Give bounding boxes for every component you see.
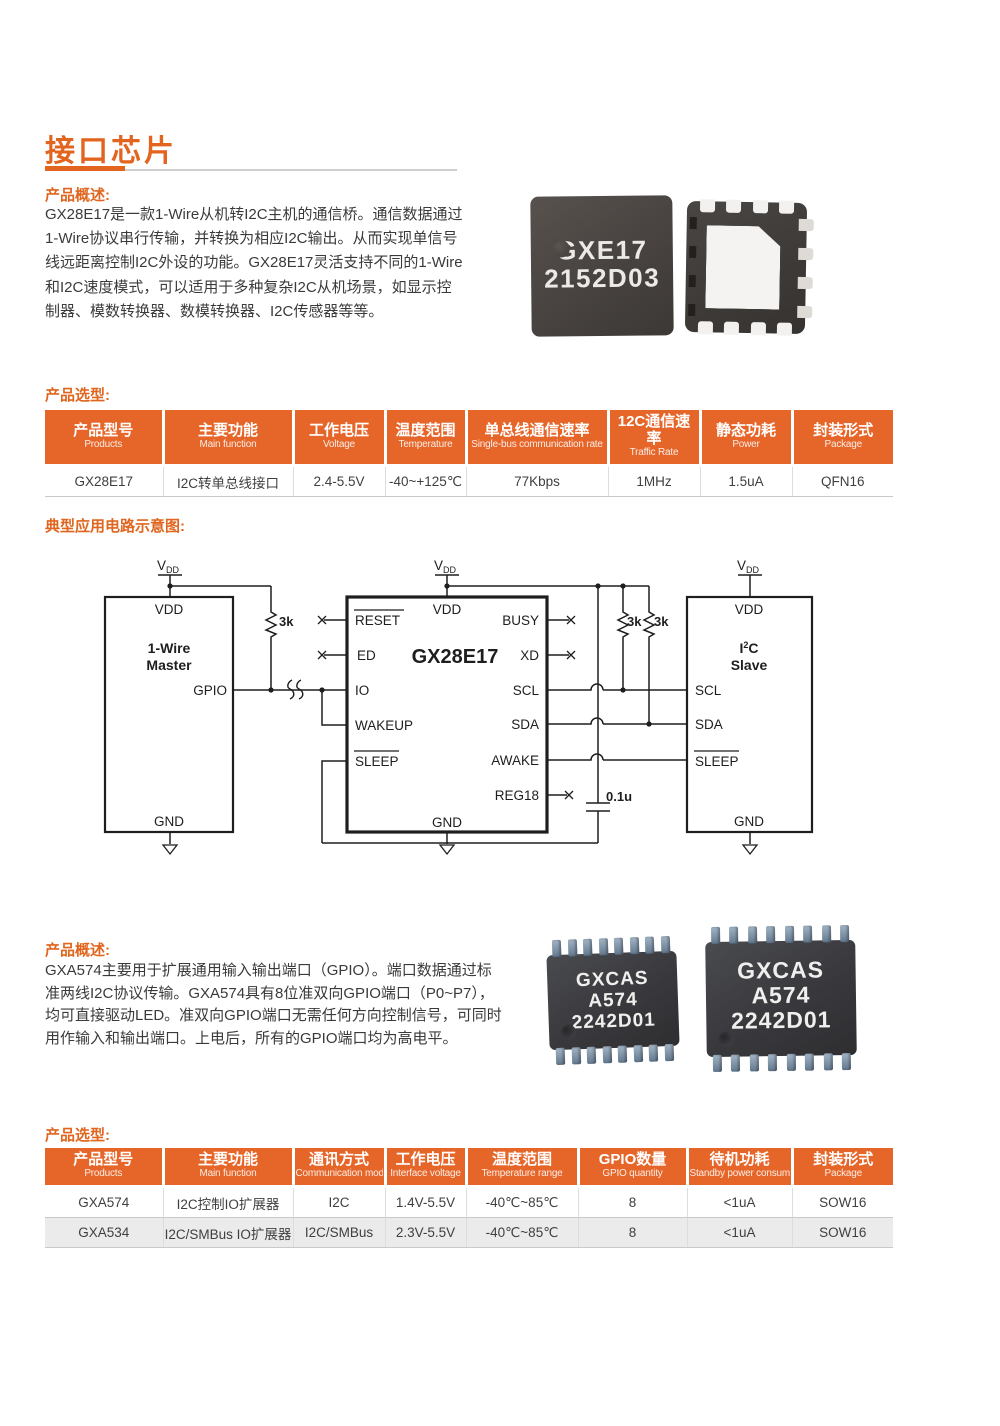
table-row: GXA574 I2C控制IO扩展器 I2C 1.4V-5.5V -40℃~85℃… [45,1187,893,1218]
data-cell: 8 [578,1187,687,1218]
qfn-pads-top [700,199,794,214]
product-table-2: 产品型号Products 主要功能Main function 通讯方式Commu… [45,1148,893,1248]
page-title: 接口芯片 [45,126,177,170]
slave-sleep-pin: SLEEP [695,754,739,769]
header-cell: 温度范围Temperature range [466,1148,578,1187]
chip-sleep-pin: SLEEP [355,754,399,769]
data-cell: GXA534 [45,1218,163,1248]
qfn-pads-left [688,217,697,316]
selection-label-1: 产品选型: [45,384,110,405]
chip-gnd-pin: GND [432,815,462,830]
data-cell: I2C [293,1187,385,1218]
chip-io-pin: IO [355,683,369,698]
chip-reset-pin: RESET [355,613,400,628]
chip-reg18-pin: REG18 [495,788,539,803]
chip-marking-line: A574 [706,982,856,1009]
qfn-pads-right [797,219,814,318]
data-cell: 77Kbps [466,466,608,497]
paragraph-line: 制器、模数转换器、数模转换器、I2C传感器等等。 [45,300,463,324]
data-cell: I2C/SMBus [293,1218,385,1248]
data-cell: I2C控制IO扩展器 [163,1187,293,1218]
table-header-row: 产品型号Products 主要功能Main function 通讯方式Commu… [45,1148,893,1187]
header-cell: 工作电压Interface voltage [385,1148,466,1187]
chip-ed-pin: ED [357,648,376,663]
chip-marking-line: 2152D03 [531,263,673,292]
header-cell: 主要功能Main function [163,410,293,466]
data-cell: -40℃~85℃ [466,1218,578,1248]
vdd-supply-label: VDD [737,558,760,575]
master-title: 1-Wire [148,640,191,656]
paragraph-line: 准两线I2C协议传输。GXA574具有8位准双向GPIO端口（P0~P7）， [45,983,502,1006]
data-cell: 1MHz [608,466,700,497]
slave-gnd-pin: GND [734,814,764,829]
chip-vdd-pin: VDD [433,602,462,617]
paragraph-line: 均可直接驱动LED。准双向GPIO端口无需任何方向控制信号，可同时 [45,1005,502,1028]
paragraph-line: GXA574主要用于扩展通用输入输出端口（GPIO）。端口数据通过标 [45,960,502,983]
master-gnd-pin: GND [154,814,184,829]
data-cell: 8 [578,1218,687,1248]
data-cell: -40℃~85℃ [466,1187,578,1218]
data-cell: <1uA [687,1218,792,1248]
chip-photo-soic-large: GXCAS A574 2242D01 [705,940,857,1057]
slave-vdd-pin: VDD [735,602,764,617]
overview-paragraph-2: GXA574主要用于扩展通用输入输出端口（GPIO）。端口数据通过标 准两线I2… [45,960,502,1050]
header-cell: 单总线通信速率Single-bus communication rate [466,410,608,466]
paragraph-line: 用作输入和输出端口。上电后，所有的GPIO端口均为高电平。 [45,1028,502,1051]
header-cell: 封装形式Package [792,1148,893,1187]
resistor-value: 3k [627,614,642,629]
header-cell: 温度范围Temperature [385,410,466,466]
data-cell: I2C转单总线接口 [163,466,293,497]
data-cell: <1uA [687,1187,792,1218]
soic-pins-top [711,925,849,944]
chip-photo-soic-small: GXCAS A574 2242D01 [546,951,679,1050]
data-cell: GX28E17 [45,466,163,497]
header-cell: 封装形式Package [792,410,893,466]
circuit-junctions [167,583,651,726]
slave-sda-pin: SDA [695,717,723,732]
pin1-marker [553,240,570,257]
paragraph-line: 和I2C速度模式，可以适用于多种复杂I2C从机场景，如显示控 [45,276,463,300]
overview-label-2: 产品概述: [45,939,110,960]
chip-name: GX28E17 [412,646,499,668]
resistor-value: 3k [279,614,294,629]
paragraph-line: 1-Wire协议串行传输，并转换为相应I2C输出。从而实现单信号 [45,227,463,251]
product-table-1: 产品型号Products 主要功能Main function 工作电压Volta… [45,410,893,497]
chip-photo-qfn-top: GXE17 2152D03 [530,195,673,336]
circuit-caption: 典型应用电路示意图: [45,515,185,536]
paragraph-line: 线远距离控制I2C外设的功能。GX28E17灵活支持不同的1-Wire [45,251,463,275]
chip-busy-pin: BUSY [502,613,539,628]
data-cell: GXA574 [45,1187,163,1218]
header-cell: 产品型号Products [45,410,163,466]
chip-wakeup-pin: WAKEUP [355,718,413,733]
chip-marking-line: GXCAS [705,957,855,984]
data-cell: SOW16 [792,1187,893,1218]
table-header-row: 产品型号Products 主要功能Main function 工作电压Volta… [45,410,893,466]
data-cell: I2C/SMBus IO扩展器 [163,1218,293,1248]
data-cell: QFN16 [792,466,893,497]
header-cell: 主要功能Main function [163,1148,293,1187]
chip-scl-pin: SCL [513,683,540,698]
data-cell: 2.3V-5.5V [385,1218,466,1248]
master-vdd-pin: VDD [155,602,184,617]
chip-marking-line: 2242D01 [706,1007,856,1034]
data-cell: 1.4V-5.5V [385,1187,466,1218]
capacitor-value: 0.1u [606,789,632,804]
master-gpio-pin: GPIO [193,683,227,698]
header-cell: 12C通信速率Traffic Rate [608,410,700,466]
resistor-value: 3k [654,614,669,629]
chip-sda-pin: SDA [511,717,539,732]
slave-title: I2C [739,640,758,656]
header-cell: 静态功耗Power [700,410,792,466]
overview-label-1: 产品概述: [45,184,110,205]
datasheet-page: 接口芯片 产品概述: GX28E17是一款1-Wire从机转I2C主机的通信桥。… [0,0,1000,1426]
overview-paragraph-1: GX28E17是一款1-Wire从机转I2C主机的通信桥。通信数据通过 1-Wi… [45,203,463,324]
slave-title: Slave [731,657,768,673]
qfn-pads-bottom [698,321,792,336]
data-cell: 2.4-5.5V [293,466,385,497]
table-row: GXA534 I2C/SMBus IO扩展器 I2C/SMBus 2.3V-5.… [45,1218,893,1248]
table-row: GX28E17 I2C转单总线接口 2.4-5.5V -40~+125℃ 77K… [45,466,893,497]
master-title: Master [146,657,192,673]
chip-xd-pin: XD [520,648,539,663]
qfn-center-pad [705,225,780,309]
application-circuit-diagram: VDD VDD VDD VDD 1-Wire Master GPIO GND V… [45,545,835,880]
slave-scl-pin: SCL [695,683,722,698]
soic-pins-bottom [556,1044,675,1065]
soic-pins-bottom [713,1053,851,1072]
header-cell: 待机功耗Standby power consumption [687,1148,792,1187]
vdd-supply-label: VDD [434,558,457,575]
pin1-marker [718,1032,733,1047]
header-cell: 产品型号Products [45,1148,163,1187]
header-cell: 工作电压Voltage [293,410,385,466]
data-cell: 1.5uA [700,466,792,497]
data-cell: -40~+125℃ [385,466,466,497]
data-cell: SOW16 [792,1218,893,1248]
pin1-marker [561,1024,577,1040]
soic-pins-top [552,936,671,957]
header-cell: GPIO数量GPIO quantity [578,1148,687,1187]
title-divider-accent [45,166,125,171]
header-cell: 通讯方式Communication mode [293,1148,385,1187]
selection-label-2: 产品选型: [45,1124,110,1145]
chip-photo-qfn-bottom [685,201,807,334]
chip-awake-pin: AWAKE [491,753,539,768]
paragraph-line: GX28E17是一款1-Wire从机转I2C主机的通信桥。通信数据通过 [45,203,463,227]
vdd-supply-label: VDD [157,558,180,575]
